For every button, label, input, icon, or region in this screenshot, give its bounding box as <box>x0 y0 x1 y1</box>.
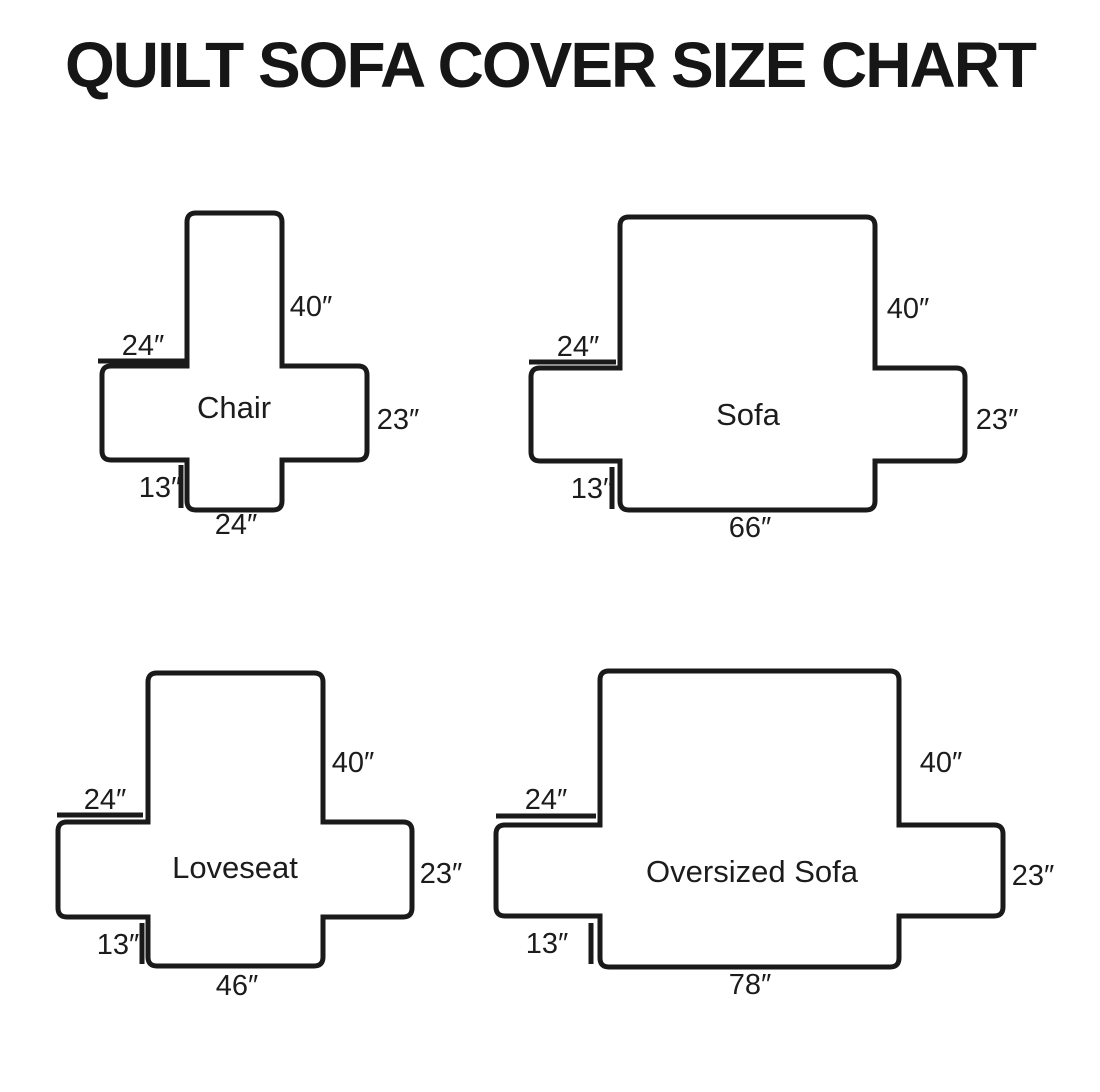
chair-diagram: 40″ 24″ Chair 23″ 13″ 24″ <box>98 213 419 541</box>
sofa-flap-height-label: 13″ <box>571 473 614 505</box>
chair-name-label: Chair <box>197 390 271 425</box>
size-chart-canvas: 40″ 24″ Chair 23″ 13″ 24″ 40″ 24″ Sofa 2… <box>0 0 1100 1092</box>
chair-arm-top-label: 24″ <box>122 330 165 362</box>
chair-flap-height-label: 13″ <box>139 472 182 504</box>
oversized-sofa-bottom-width-label: 78″ <box>729 969 772 1001</box>
oversized-sofa-flap-height-label: 13″ <box>526 928 569 960</box>
loveseat-back-height-label: 40″ <box>332 747 375 779</box>
loveseat-cover-outline <box>58 673 412 966</box>
sofa-name-label: Sofa <box>716 397 781 432</box>
chair-back-height-label: 40″ <box>290 291 333 323</box>
oversized-sofa-cover-outline <box>496 671 1003 967</box>
sofa-back-height-label: 40″ <box>887 293 930 325</box>
chair-side-width-label: 23″ <box>377 404 420 436</box>
sofa-diagram: 40″ 24″ Sofa 23″ 13″ 66″ <box>529 217 1018 544</box>
oversized-sofa-arm-top-label: 24″ <box>525 784 568 816</box>
oversized-sofa-diagram: 40″ 24″ Oversized Sofa 23″ 13″ 78″ <box>496 671 1054 1001</box>
sofa-bottom-width-label: 66″ <box>729 512 772 544</box>
sofa-side-width-label: 23″ <box>976 404 1019 436</box>
loveseat-arm-top-label: 24″ <box>84 784 127 816</box>
loveseat-diagram: 40″ 24″ Loveseat 23″ 13″ 46″ <box>57 673 462 1002</box>
oversized-sofa-back-height-label: 40″ <box>920 747 963 779</box>
sofa-arm-top-label: 24″ <box>557 331 600 363</box>
oversized-sofa-name-label: Oversized Sofa <box>646 854 859 889</box>
chair-bottom-width-label: 24″ <box>215 509 258 541</box>
oversized-sofa-side-width-label: 23″ <box>1012 860 1055 892</box>
loveseat-bottom-width-label: 46″ <box>216 970 259 1002</box>
loveseat-side-width-label: 23″ <box>420 858 463 890</box>
loveseat-name-label: Loveseat <box>172 850 298 885</box>
loveseat-flap-height-label: 13″ <box>97 929 140 961</box>
